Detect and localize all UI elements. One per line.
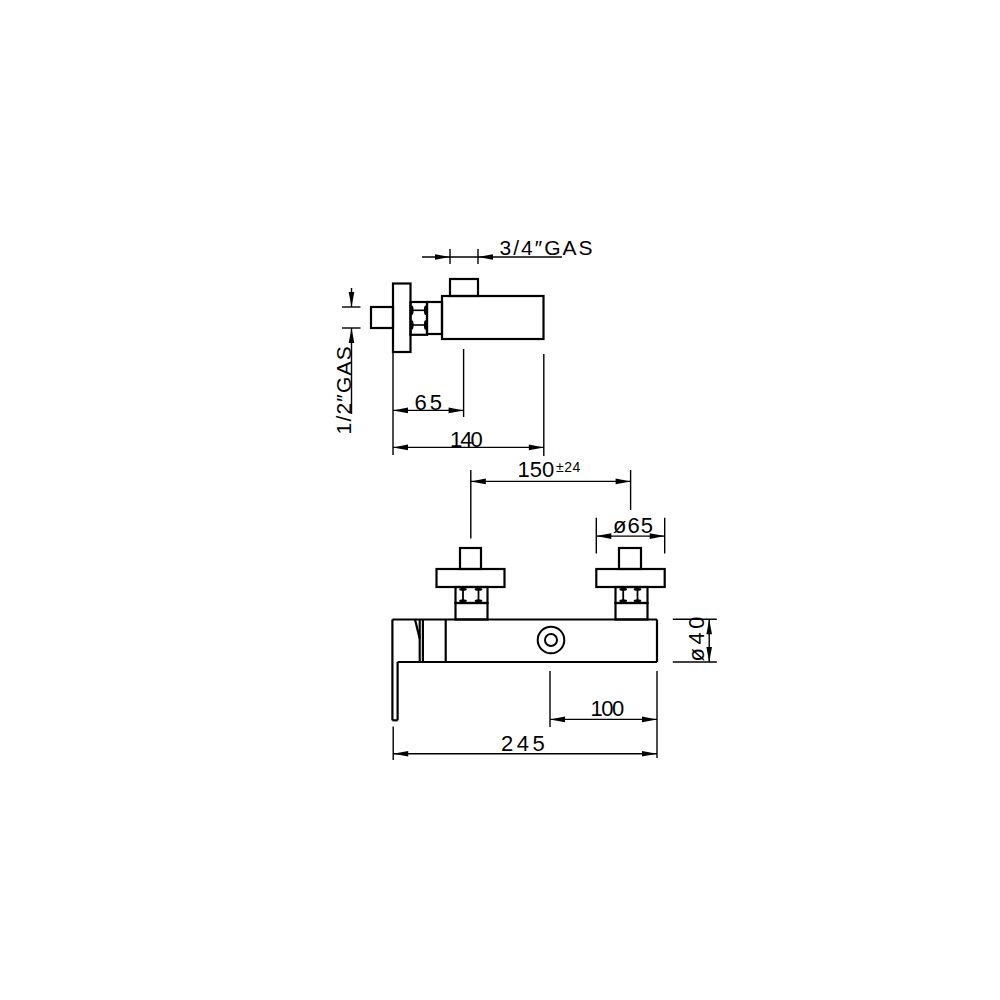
svg-text:ø65: ø65 (613, 513, 654, 538)
svg-text:±24: ±24 (556, 459, 581, 475)
svg-text:150: 150 (518, 457, 555, 482)
svg-text:3/4″GAS: 3/4″GAS (500, 236, 595, 259)
svg-text:100: 100 (591, 696, 624, 721)
svg-text:ø40: ø40 (684, 613, 709, 661)
svg-text:140: 140 (450, 427, 482, 452)
svg-text:1/2″GAS: 1/2″GAS (332, 345, 355, 434)
svg-text:245: 245 (501, 731, 548, 756)
svg-text:65: 65 (415, 390, 445, 415)
